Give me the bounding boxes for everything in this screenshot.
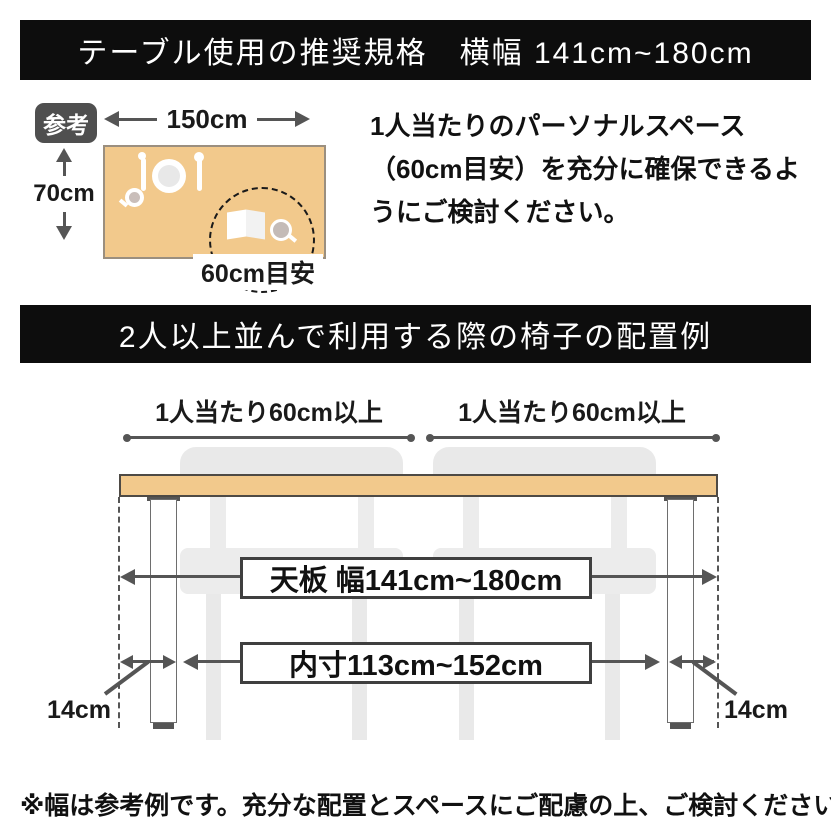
dashed-line-left	[118, 497, 120, 728]
chair-left-post	[358, 497, 374, 552]
book-right-page-icon	[246, 209, 265, 239]
dashed-line-right	[717, 497, 719, 728]
leg-inset-arrow-right	[703, 655, 716, 669]
measure-dot	[712, 434, 720, 442]
chair-layout-banner-title: 2人以上並んで利用する際の椅子の配置例	[119, 312, 712, 356]
reference-badge: 参考	[35, 103, 97, 143]
plate-inner-icon	[158, 165, 180, 187]
chair-right-post	[611, 497, 627, 552]
table-depth-label: 70cm	[33, 176, 94, 212]
table-leg-foot-left	[153, 723, 174, 729]
spoon-icon	[197, 158, 202, 191]
chair-layout-banner: 2人以上並んで利用する際の椅子の配置例	[20, 305, 811, 363]
tabletop	[119, 474, 718, 497]
spoon-head-icon	[194, 152, 204, 162]
top-banner: テーブル使用の推奨規格 横幅 141cm~180cm	[20, 20, 811, 80]
per-person-label-right: 1人当たり60cm以上	[422, 393, 722, 429]
tabletop-width-label: 天板 幅141cm~180cm	[270, 557, 563, 599]
book-left-page-icon	[227, 209, 246, 239]
chair-right-post	[463, 497, 479, 552]
footnote: ※幅は参考例です。充分な配置とスペースにご配慮の上、ご検討ください。	[20, 786, 820, 822]
table-leg-foot-right	[670, 723, 691, 729]
measure-line-left	[127, 436, 411, 439]
measure-line-right	[430, 436, 716, 439]
tabletop-width-box: 天板 幅141cm~180cm	[240, 557, 592, 599]
table-leg-right	[667, 499, 694, 723]
arrow-right-icon	[645, 654, 660, 670]
arrow-up-icon	[56, 148, 72, 162]
measure-dot	[407, 434, 415, 442]
per-person-label-left: 1人当たり60cm以上	[119, 393, 419, 429]
chair-right-leg	[605, 594, 620, 740]
personal-space-label: 60cm目安	[193, 254, 323, 290]
fork-icon	[141, 158, 146, 191]
table-top-view	[103, 145, 326, 259]
infographic-page: テーブル使用の推奨規格 横幅 141cm~180cm 参考 150cm 70cm	[0, 0, 831, 831]
chair-left-leg	[206, 594, 221, 740]
inner-width-box: 内寸113cm~152cm	[240, 642, 592, 684]
arrow-down-icon	[56, 226, 72, 240]
table-width-label: 150cm	[157, 104, 258, 135]
table-leg-left	[150, 499, 177, 723]
top-banner-title: テーブル使用の推奨規格 横幅 141cm~180cm	[77, 28, 753, 72]
arrow-right-icon	[702, 569, 717, 585]
depth-dimension-arrow: 70cm	[33, 148, 95, 240]
arrow-left-icon	[104, 111, 119, 127]
reference-badge-label: 参考	[43, 106, 89, 140]
width-dimension-arrow: 150cm	[104, 106, 310, 132]
leg-inset-label-right: 14cm	[724, 696, 804, 725]
chair-left-post	[210, 497, 226, 552]
leg-inset-label-left: 14cm	[35, 696, 111, 725]
arrow-right-icon	[295, 111, 310, 127]
usage-note: 1人当たりのパーソナルスペース（60cm目安）を充分に確保できるようにご検討くだ…	[370, 105, 815, 234]
inner-width-label: 内寸113cm~152cm	[289, 642, 543, 684]
cup-inner-icon	[129, 192, 140, 203]
fork-head-icon	[138, 152, 146, 160]
leg-inset-arrow-left	[163, 655, 176, 669]
